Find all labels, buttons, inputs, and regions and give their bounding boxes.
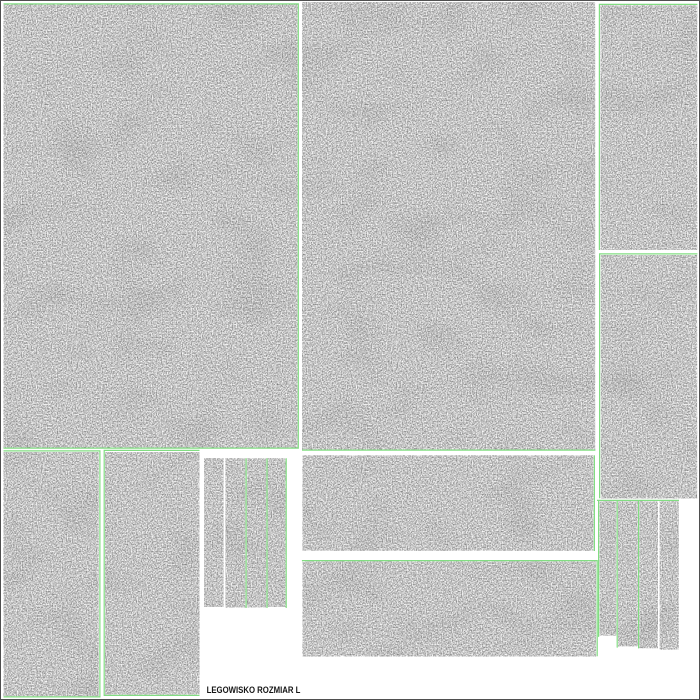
svg-text:LEGOWISKO ROZMIAR L: LEGOWISKO ROZMIAR L [207,685,301,695]
